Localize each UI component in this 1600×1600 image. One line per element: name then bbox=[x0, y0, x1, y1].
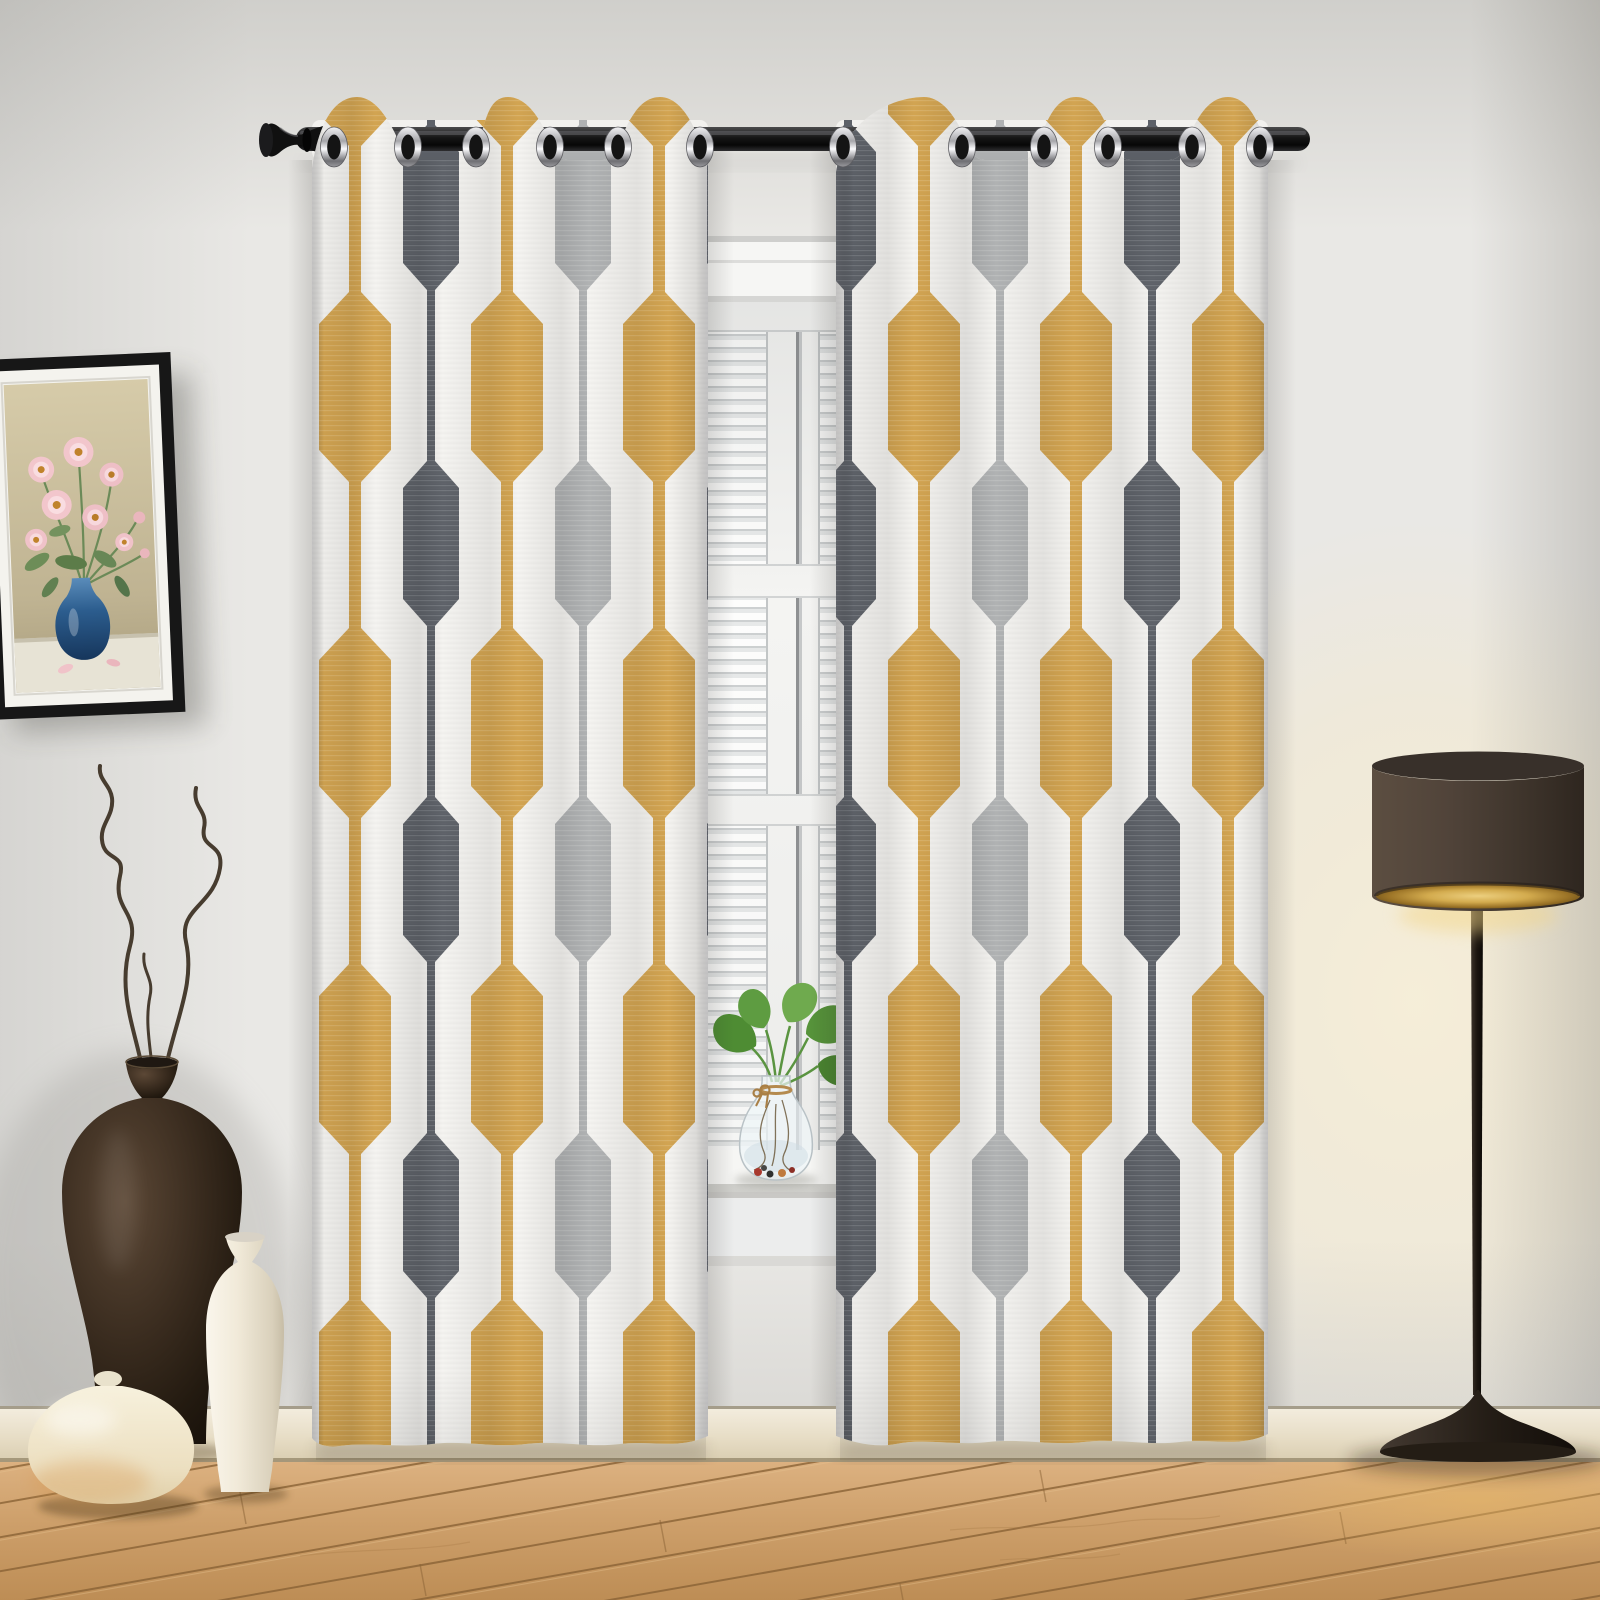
lamp-base-foot bbox=[1380, 1442, 1576, 1462]
grommet-ring bbox=[463, 127, 490, 167]
grommet-ring bbox=[1179, 127, 1206, 167]
curtain-panel-left bbox=[312, 90, 708, 1455]
grommet-ring bbox=[830, 127, 857, 167]
painting-artwork bbox=[4, 379, 161, 693]
grommet-ring bbox=[1095, 127, 1122, 167]
grommet-ring bbox=[395, 127, 422, 167]
rod-highlight bbox=[300, 131, 1306, 135]
lamp-shade bbox=[1372, 752, 1584, 912]
grommet-ring bbox=[949, 127, 976, 167]
grommet-ring bbox=[321, 127, 348, 167]
grommet-ring bbox=[537, 127, 564, 167]
product-photo-scene: Product photo of mid-century modern geom… bbox=[0, 0, 1600, 1600]
curtain-panel-right bbox=[836, 90, 1268, 1455]
grommet-ring bbox=[1247, 127, 1274, 167]
rod-bar bbox=[296, 127, 1310, 151]
lamp-stem bbox=[1471, 906, 1483, 1395]
grommet-ring bbox=[1031, 127, 1058, 167]
grommet-ring bbox=[605, 127, 632, 167]
scene-canvas: Product photo of mid-century modern geom… bbox=[0, 0, 1600, 1600]
vase-water bbox=[744, 1140, 808, 1172]
framed-painting bbox=[0, 351, 206, 734]
grommet-ring bbox=[687, 127, 714, 167]
